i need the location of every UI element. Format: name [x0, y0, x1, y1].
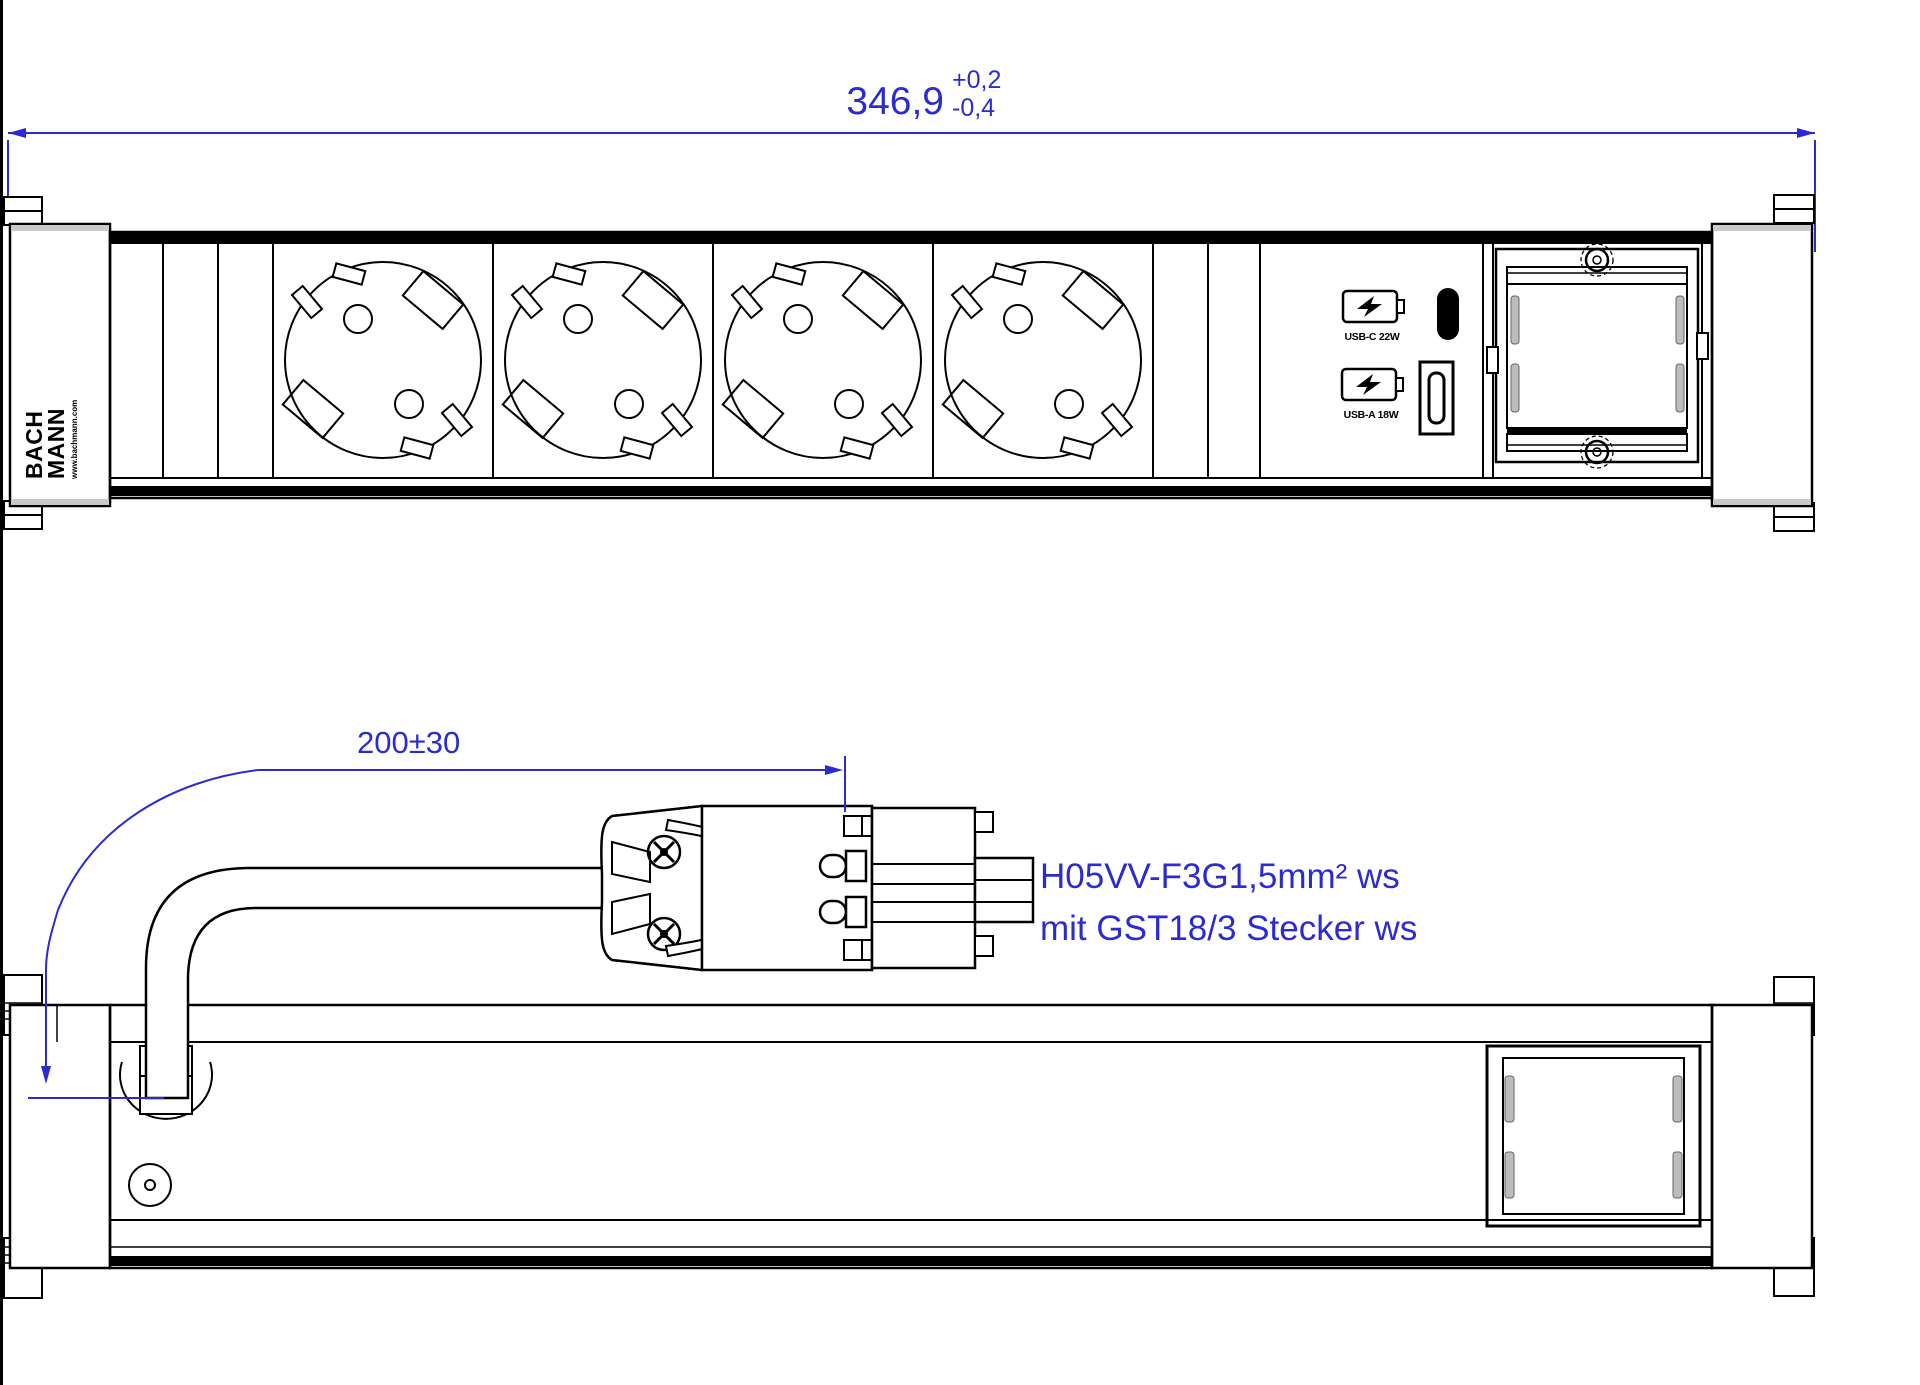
plug-body — [702, 806, 872, 970]
custom-module-slot-front — [1487, 244, 1708, 468]
usb-charger-panel: USB-C 22W USB-A 18W — [1260, 243, 1483, 478]
bottom-view: 200±30 H05VV-F3G1,5mm² ws mit GST18/3 St… — [4, 725, 1814, 1298]
housing-bottom — [57, 1005, 1712, 1268]
cable-length-value: 200±30 — [357, 725, 460, 760]
cable-spec-annotation: H05VV-F3G1,5mm² ws mit GST18/3 Stecker w… — [1040, 857, 1417, 948]
usb-c-port — [1437, 288, 1459, 340]
usb-a-port — [1420, 362, 1453, 434]
cable-dimension-arrow-right — [825, 765, 843, 775]
usb-c-charge-icon — [1343, 291, 1404, 322]
cable-spec-line2: mit GST18/3 Stecker ws — [1040, 909, 1417, 948]
brand-logo: BACH MANN www.bachmann.com — [21, 400, 79, 480]
custom-module-slot-bottom — [1487, 1046, 1700, 1226]
dimension-arrow-left — [8, 128, 26, 138]
schuko-socket-1 — [283, 262, 481, 459]
usb-c-label: USB-C 22W — [1344, 331, 1399, 343]
schuko-socket-field — [273, 243, 1153, 478]
housing-screw-hole — [129, 1164, 171, 1206]
schuko-socket-4 — [943, 262, 1141, 459]
page-border-left — [0, 0, 3, 1385]
mounting-tabs-front — [4, 195, 1814, 531]
power-cable — [146, 868, 604, 1098]
dimension-value: 346,9 — [846, 80, 944, 123]
usb-a-label: USB-A 18W — [1344, 409, 1399, 421]
cable-spec-line1: H05VV-F3G1,5mm² ws — [1040, 857, 1400, 896]
end-cap-right-bottom — [1712, 1005, 1812, 1268]
overall-width-dimension: 346,9 +0,2 -0,4 — [8, 66, 1815, 252]
schuko-socket-2 — [503, 262, 701, 459]
brand-line2: MANN — [43, 408, 69, 479]
technical-drawing-page: 346,9 +0,2 -0,4 BACH MA — [0, 0, 1920, 1385]
dimension-arrow-right — [1797, 128, 1815, 138]
mounting-tabs-bottom — [4, 975, 1814, 1298]
usb-a-charge-icon — [1342, 369, 1403, 400]
end-cap-right — [1712, 224, 1812, 506]
plug-socket-housing — [872, 808, 1033, 968]
dimension-tolerance-plus: +0,2 — [952, 66, 1001, 94]
gst18-plug — [601, 806, 1033, 970]
brand-website: www.bachmann.com — [70, 400, 79, 480]
front-view: BACH MANN www.bachmann.com — [4, 195, 1814, 531]
end-cap-left-bottom — [10, 1005, 110, 1268]
dimension-tolerance-minus: -0,4 — [952, 94, 995, 122]
drawing-canvas: 346,9 +0,2 -0,4 BACH MA — [0, 0, 1920, 1385]
schuko-socket-3 — [723, 262, 921, 459]
